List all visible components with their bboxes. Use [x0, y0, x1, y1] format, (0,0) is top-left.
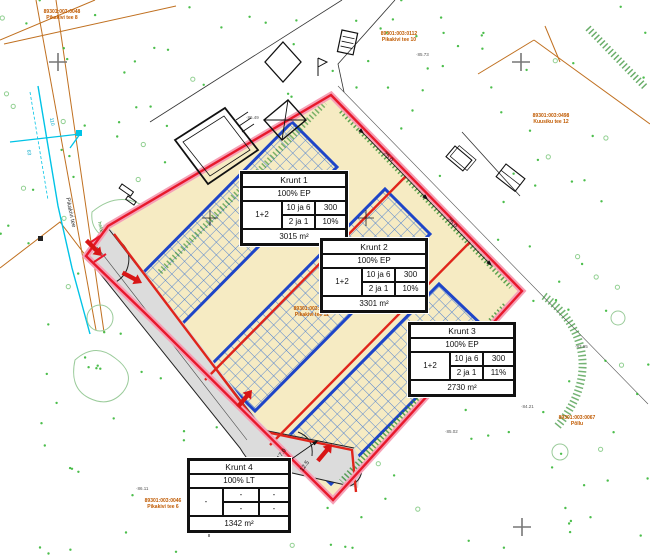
plot-cell: 300: [395, 268, 426, 282]
plot-cell: -: [259, 502, 289, 516]
plot-table-krunt-4: Krunt 4 100% LT - - - - - 1342 m²: [187, 458, 291, 533]
plot-cell: 300: [483, 352, 514, 366]
cadastral-label: Pikakivi tee 10: [382, 37, 416, 43]
plot-cell: 10%: [395, 282, 426, 296]
plot-cell: 10%: [315, 215, 346, 229]
plot-area: 3301 m²: [322, 296, 426, 311]
plot-cell: 11%: [483, 366, 514, 380]
diamond-symbol: [265, 42, 301, 82]
svg-text:·85.02: ·85.02: [445, 429, 458, 434]
plot-table-krunt-3: Krunt 3 100% EP 10 ja 6 300 1+2 2 ja 1 1…: [408, 322, 516, 397]
plot-use: 100% EP: [410, 338, 514, 352]
legend-box-symbol: [337, 30, 357, 55]
detail-plan-map: 110 63: [0, 0, 650, 555]
cadastral-label: Põllu: [571, 421, 583, 427]
plot-cell: 2 ja 1: [362, 282, 395, 296]
plot-use: 100% EP: [242, 187, 346, 201]
plot-name: Krunt 1: [242, 173, 346, 187]
shed-3d-symbol: [446, 144, 476, 173]
utility-network: 110 63: [10, 86, 90, 334]
plot-cell: 10 ja 6: [282, 201, 315, 215]
plot-name: Krunt 3: [410, 324, 514, 338]
plot-cell: 10 ja 6: [362, 268, 395, 282]
plot-table-krunt-2: Krunt 2 100% EP 10 ja 6 300 1+2 2 ja 1 1…: [320, 238, 428, 313]
shed-symbol: [119, 184, 133, 196]
utility-node: [76, 130, 82, 136]
plot-cell: -: [223, 488, 259, 502]
plot-use: 100% EP: [322, 254, 426, 268]
plot-floors: 1+2: [242, 201, 282, 229]
plot-name: Krunt 4: [189, 460, 289, 474]
plot-cell: 10 ja 6: [450, 352, 483, 366]
svg-text:·83.95: ·83.95: [575, 344, 588, 349]
plot-cell: 300: [315, 201, 346, 215]
cadastral-label: Pikakivi tee 8: [46, 15, 78, 21]
plot-area: 1342 m²: [189, 516, 289, 531]
hedge-band-right-arc: [544, 296, 583, 428]
plot-use: 100% LT: [189, 474, 289, 488]
utility-label-1: 110: [48, 117, 55, 126]
flag-symbol: [318, 58, 327, 76]
svg-text:·86.49: ·86.49: [246, 115, 259, 120]
plot-area: 2730 m²: [410, 380, 514, 395]
hedge-band-topright: [588, 28, 646, 88]
plot-cell: 2 ja 1: [450, 366, 483, 380]
cadastral-label: Pikakivi tee 6: [147, 504, 179, 510]
plot-cell: -: [223, 502, 259, 516]
planning-site: [86, 95, 522, 500]
svg-text:·85.73: ·85.73: [416, 52, 429, 57]
svg-text:·84.21: ·84.21: [521, 404, 534, 409]
plot-floors: 1+2: [410, 352, 450, 380]
utility-label-2: 63: [25, 149, 32, 156]
shed-3d-symbol: [496, 164, 525, 191]
plot-table-krunt-1: Krunt 1 100% EP 10 ja 6 300 1+2 2 ja 1 1…: [240, 171, 348, 246]
plot-floors: -: [189, 488, 223, 516]
cadastral-label: Kuusiku tee 12: [533, 119, 569, 125]
plot-cell: -: [259, 488, 289, 502]
plot-cell: 2 ja 1: [282, 215, 315, 229]
plot-name: Krunt 2: [322, 240, 426, 254]
plot-floors: 1+2: [322, 268, 362, 296]
boundary-point-marker: [38, 236, 43, 241]
svg-text:·86.11: ·86.11: [136, 486, 149, 491]
